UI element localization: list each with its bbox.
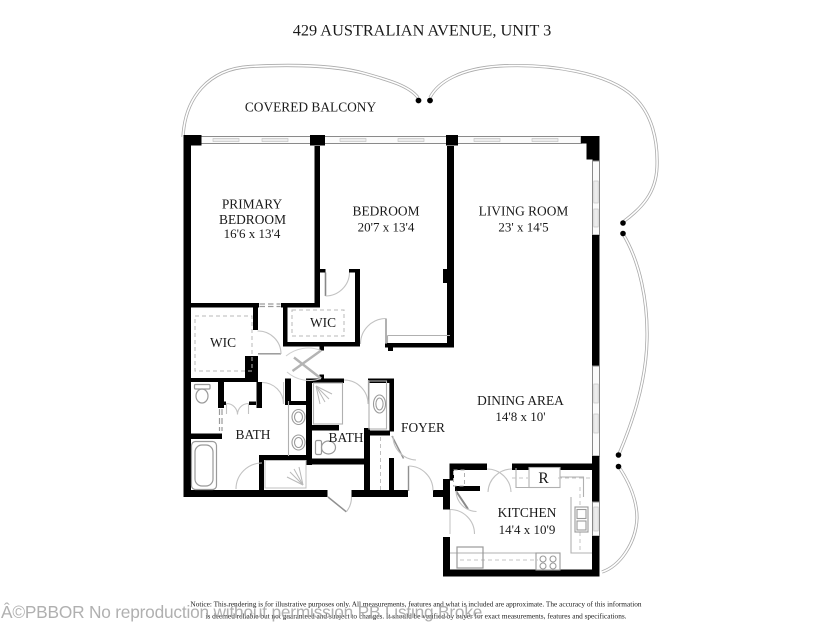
svg-text:PRIMARY: PRIMARY: [222, 197, 283, 212]
svg-text:BATH: BATH: [329, 430, 364, 445]
svg-text:20'7 x 13'4: 20'7 x 13'4: [358, 219, 415, 234]
svg-text:BATH: BATH: [236, 427, 271, 442]
svg-text:R: R: [538, 470, 549, 487]
svg-text:FOYER: FOYER: [401, 420, 445, 435]
svg-text:KITCHEN: KITCHEN: [498, 505, 557, 520]
svg-text:429 AUSTRALIAN AVENUE, UNIT 3: 429 AUSTRALIAN AVENUE, UNIT 3: [293, 21, 552, 40]
svg-text:14'4 x 10'9: 14'4 x 10'9: [499, 522, 556, 537]
svg-text:14'8 x 10': 14'8 x 10': [495, 409, 545, 424]
svg-text:DINING AREA: DINING AREA: [477, 393, 564, 408]
svg-text:BEDROOM: BEDROOM: [353, 203, 420, 218]
svg-text:Â©PBBOR No reproduction withou: Â©PBBOR No reproduction without permissi…: [1, 602, 482, 622]
svg-text:BEDROOM: BEDROOM: [219, 212, 286, 227]
svg-text:23' x 14'5: 23' x 14'5: [498, 219, 548, 234]
svg-text:16'6 x 13'4: 16'6 x 13'4: [224, 226, 281, 241]
svg-text:COVERED BALCONY: COVERED BALCONY: [245, 100, 377, 115]
svg-text:WIC: WIC: [210, 335, 236, 350]
svg-text:WIC: WIC: [310, 315, 336, 330]
svg-text:LIVING ROOM: LIVING ROOM: [479, 203, 569, 218]
